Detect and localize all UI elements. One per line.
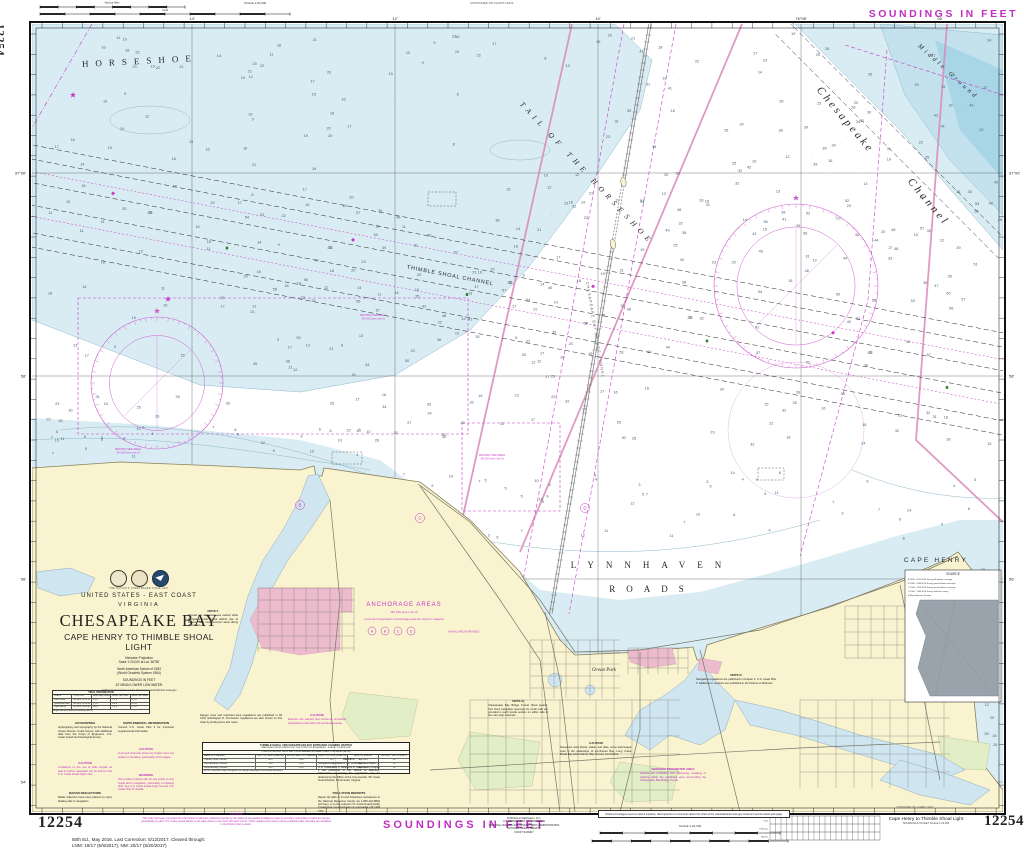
svg-text:13: 13 [455, 331, 459, 335]
svg-text:16: 16 [101, 45, 105, 49]
svg-text:54: 54 [245, 216, 249, 220]
svg-text:18: 18 [944, 415, 948, 419]
svg-text:25: 25 [673, 244, 677, 248]
svg-text:10: 10 [539, 498, 543, 502]
svg-text:21: 21 [288, 366, 292, 370]
svg-text:22: 22 [46, 418, 50, 422]
svg-text:20: 20 [460, 421, 464, 425]
svg-text:34: 34 [987, 39, 991, 43]
svg-text:51: 51 [640, 199, 644, 203]
svg-text:34: 34 [257, 240, 261, 244]
svg-text:18: 18 [652, 145, 656, 149]
svg-text:34: 34 [720, 387, 724, 391]
svg-text:35: 35 [868, 72, 872, 76]
svg-text:21: 21 [537, 228, 541, 232]
svg-text:18: 18 [394, 291, 398, 295]
svg-text:42: 42 [422, 304, 426, 308]
svg-text:23: 23 [551, 375, 555, 379]
svg-text:22: 22 [919, 141, 923, 145]
svg-text:17: 17 [355, 398, 359, 402]
svg-text:4: 4 [742, 477, 744, 481]
svg-text:SOURCE: SOURCE [946, 572, 960, 576]
svg-text:32: 32 [735, 182, 739, 186]
svg-text:16: 16 [173, 184, 177, 188]
svg-text:19: 19 [312, 167, 316, 171]
svg-text:15: 15 [55, 438, 59, 442]
svg-text:20: 20 [816, 53, 820, 57]
svg-text:31: 31 [414, 243, 418, 247]
conversion-grid: FeetFathomsMeters [759, 816, 880, 840]
svg-text:11: 11 [48, 211, 52, 215]
svg-text:19: 19 [120, 127, 124, 131]
svg-text:45: 45 [147, 210, 153, 215]
svg-text:37: 37 [756, 351, 760, 355]
svg-text:56': 56' [1009, 577, 1014, 582]
svg-text:10: 10 [696, 513, 700, 517]
svg-text:12: 12 [630, 502, 634, 506]
svg-text:334.300 (see note A): 334.300 (see note A) [361, 318, 384, 321]
svg-text:11: 11 [887, 147, 891, 151]
svg-text:20: 20 [847, 204, 851, 208]
nautical-chart-canvas: 4545454545238201119192017111018192220171… [0, 0, 1024, 849]
svg-text:RESTRICTED AREA: RESTRICTED AREA [479, 453, 505, 457]
svg-text:9: 9 [273, 449, 275, 453]
svg-text:21: 21 [898, 413, 902, 417]
svg-text:334.300 (see note A): 334.300 (see note A) [480, 458, 503, 461]
svg-text:6: 6 [733, 513, 735, 517]
svg-text:35: 35 [927, 229, 931, 233]
svg-text:11: 11 [270, 52, 274, 56]
svg-text:39: 39 [813, 163, 817, 167]
svg-text:31: 31 [933, 415, 937, 419]
svg-text:11: 11 [983, 86, 987, 90]
svg-text:11: 11 [161, 287, 165, 291]
svg-text:26: 26 [330, 401, 334, 405]
svg-text:47: 47 [934, 284, 938, 288]
svg-text:48: 48 [805, 269, 809, 273]
svg-text:LYNNHAVEN: LYNNHAVEN [571, 560, 733, 570]
svg-text:20: 20 [351, 268, 355, 272]
svg-text:39: 39 [867, 111, 871, 115]
svg-text:30: 30 [475, 335, 479, 339]
svg-text:10': 10' [595, 16, 600, 21]
svg-text:B: B [384, 629, 387, 634]
svg-text:16: 16 [243, 146, 247, 150]
svg-text:7: 7 [521, 529, 523, 533]
svg-text:32: 32 [750, 442, 754, 446]
svg-text:34: 34 [832, 144, 836, 148]
svg-text:35: 35 [378, 209, 382, 213]
svg-text:9: 9 [433, 41, 435, 45]
svg-text:27: 27 [753, 52, 757, 56]
svg-text:21: 21 [252, 163, 256, 167]
svg-text:46: 46 [891, 228, 895, 232]
svg-text:18: 18 [670, 109, 674, 113]
svg-text:20: 20 [417, 273, 421, 277]
svg-text:58': 58' [21, 374, 26, 379]
svg-text:18: 18 [125, 48, 129, 52]
svg-text:9: 9 [422, 61, 424, 65]
svg-text:24: 24 [104, 402, 108, 406]
svg-text:9: 9 [114, 345, 116, 349]
svg-text:15: 15 [66, 200, 70, 204]
svg-text:17: 17 [512, 305, 516, 309]
svg-text:50: 50 [297, 336, 301, 340]
svg-text:53: 53 [374, 233, 378, 237]
svg-text:57: 57 [376, 308, 380, 312]
svg-text:16: 16 [415, 288, 419, 292]
svg-text:54: 54 [758, 290, 762, 294]
svg-text:19: 19 [601, 272, 605, 276]
svg-text:RESTRICTED AREA: RESTRICTED AREA [360, 313, 386, 317]
svg-text:51: 51 [789, 279, 793, 283]
svg-text:4: 4 [356, 453, 358, 457]
svg-text:17: 17 [288, 345, 292, 349]
svg-text:5: 5 [237, 433, 239, 437]
svg-text:43: 43 [969, 104, 973, 108]
svg-text:6: 6 [84, 435, 86, 439]
svg-text:7: 7 [52, 452, 54, 456]
svg-text:13: 13 [776, 189, 780, 193]
svg-text:7: 7 [683, 520, 685, 524]
svg-text:35: 35 [522, 353, 526, 357]
bottom-scale-bars: SCALE 1:20,000 [592, 824, 788, 843]
svg-text:45: 45 [759, 249, 763, 253]
svg-text:12: 12 [293, 368, 297, 372]
svg-text:12: 12 [940, 238, 944, 242]
svg-text:31: 31 [620, 269, 624, 273]
svg-text:30: 30 [58, 419, 62, 423]
svg-text:18: 18 [658, 45, 662, 49]
svg-text:29: 29 [914, 83, 918, 87]
svg-text:20: 20 [664, 173, 668, 177]
svg-text:12: 12 [531, 361, 535, 365]
svg-text:18: 18 [256, 270, 260, 274]
svg-text:46: 46 [396, 215, 400, 219]
svg-text:26: 26 [993, 743, 997, 747]
svg-text:11: 11 [670, 534, 674, 538]
svg-text:16: 16 [828, 159, 832, 163]
svg-text:32: 32 [565, 400, 569, 404]
svg-text:14': 14' [189, 16, 194, 21]
svg-text:7: 7 [646, 493, 648, 497]
svg-text:18: 18 [297, 281, 301, 285]
svg-text:32: 32 [782, 408, 786, 412]
svg-text:21: 21 [313, 38, 317, 42]
svg-text:13: 13 [306, 344, 310, 348]
svg-text:19: 19 [248, 112, 252, 116]
svg-text:50: 50 [405, 359, 409, 363]
svg-text:20: 20 [122, 207, 126, 211]
svg-text:42: 42 [752, 232, 756, 236]
svg-text:4: 4 [151, 432, 153, 436]
svg-text:334.300 (see note A): 334.300 (see note A) [116, 452, 139, 455]
svg-text:22: 22 [411, 349, 415, 353]
svg-text:28: 28 [375, 438, 379, 442]
svg-text:13: 13 [468, 292, 472, 296]
svg-text:30: 30 [442, 435, 446, 439]
svg-text:16: 16 [382, 393, 386, 397]
svg-text:5: 5 [101, 436, 103, 440]
svg-text:57: 57 [502, 288, 506, 292]
svg-text:5: 5 [431, 484, 433, 488]
svg-text:23: 23 [55, 402, 59, 406]
svg-text:9: 9 [756, 478, 758, 482]
svg-text:10: 10 [139, 249, 143, 253]
svg-text:3: 3 [638, 483, 640, 487]
svg-text:D: D [410, 629, 413, 634]
svg-text:19: 19 [596, 40, 600, 44]
svg-text:B: B [298, 503, 301, 508]
svg-text:28: 28 [792, 401, 796, 405]
svg-text:21: 21 [631, 37, 635, 41]
svg-text:26: 26 [155, 415, 159, 419]
svg-text:18: 18 [862, 423, 866, 427]
svg-text:35: 35 [415, 295, 419, 299]
svg-text:28: 28 [984, 732, 988, 736]
svg-text:23: 23 [712, 260, 716, 264]
svg-text:33: 33 [888, 256, 892, 260]
svg-text:19: 19 [241, 76, 245, 80]
svg-text:26: 26 [724, 128, 728, 132]
svg-text:57: 57 [920, 227, 924, 231]
svg-text:33: 33 [675, 171, 679, 175]
svg-text:33: 33 [699, 198, 703, 202]
svg-text:12: 12 [979, 128, 983, 132]
svg-text:38: 38 [682, 280, 686, 284]
svg-text:8: 8 [515, 336, 517, 340]
svg-text:SCALE 1:20,000: SCALE 1:20,000 [244, 1, 267, 5]
svg-text:19: 19 [461, 317, 465, 321]
svg-text:15: 15 [180, 353, 184, 357]
svg-text:22: 22 [695, 59, 699, 63]
svg-text:32: 32 [926, 411, 930, 415]
svg-text:44: 44 [843, 256, 847, 260]
svg-text:11: 11 [604, 529, 608, 533]
svg-text:10: 10 [189, 140, 193, 144]
svg-text:9: 9 [124, 92, 126, 96]
svg-text:32: 32 [470, 400, 474, 404]
svg-text:Ocean Park: Ocean Park [592, 668, 617, 673]
svg-text:15: 15 [506, 188, 510, 192]
svg-text:42: 42 [860, 119, 864, 123]
svg-text:40: 40 [906, 340, 910, 344]
svg-text:12: 12 [537, 360, 541, 364]
svg-text:16: 16 [205, 148, 209, 152]
svg-text:22: 22 [533, 308, 537, 312]
svg-text:14: 14 [907, 509, 911, 513]
svg-text:16: 16 [645, 386, 649, 390]
svg-text:13: 13 [311, 299, 315, 303]
svg-text:22: 22 [261, 441, 265, 445]
svg-text:12: 12 [985, 703, 989, 707]
svg-text:15: 15 [764, 403, 768, 407]
svg-text:44: 44 [666, 346, 670, 350]
svg-text:17: 17 [492, 42, 496, 46]
svg-text:50: 50 [836, 292, 840, 296]
svg-text:17: 17 [220, 305, 224, 309]
svg-text:10: 10 [455, 50, 459, 54]
svg-text:6: 6 [899, 518, 901, 522]
svg-text:22: 22 [769, 421, 773, 425]
svg-text:31: 31 [500, 422, 504, 426]
svg-text:5: 5 [706, 480, 708, 484]
svg-text:13: 13 [73, 343, 77, 347]
svg-text:10: 10 [406, 51, 410, 55]
svg-text:16: 16 [478, 394, 482, 398]
svg-text:28: 28 [998, 218, 1002, 222]
svg-text:26: 26 [393, 431, 397, 435]
svg-text:8: 8 [457, 92, 459, 96]
svg-text:19: 19 [351, 373, 355, 377]
svg-text:17: 17 [600, 390, 604, 394]
svg-text:16: 16 [455, 35, 459, 39]
svg-text:38: 38 [682, 231, 686, 235]
svg-text:10: 10 [310, 450, 314, 454]
svg-text:5: 5 [642, 492, 644, 496]
svg-text:41: 41 [668, 86, 672, 90]
svg-text:18: 18 [330, 269, 334, 273]
svg-text:20: 20 [326, 126, 330, 130]
svg-text:13: 13 [359, 334, 363, 338]
svg-text:22: 22 [526, 339, 530, 343]
svg-text:38: 38 [779, 129, 783, 133]
svg-text:58': 58' [1009, 374, 1014, 379]
svg-text:45: 45 [867, 350, 873, 355]
svg-text:38: 38 [923, 281, 927, 285]
svg-text:11: 11 [207, 247, 211, 251]
svg-text:9: 9 [941, 522, 943, 526]
svg-text:40: 40 [314, 258, 318, 262]
svg-text:15: 15 [207, 240, 211, 244]
svg-text:39: 39 [796, 224, 800, 228]
svg-text:20: 20 [560, 356, 564, 360]
svg-text:6: 6 [496, 536, 498, 540]
svg-text:18: 18 [284, 284, 288, 288]
svg-text:15: 15 [305, 203, 309, 207]
svg-text:9: 9 [546, 495, 548, 499]
svg-text:24: 24 [739, 122, 743, 126]
svg-text:51: 51 [973, 263, 977, 267]
svg-text:32: 32 [895, 429, 899, 433]
svg-text:54': 54' [21, 780, 26, 785]
svg-text:17: 17 [310, 80, 314, 84]
svg-text:16: 16 [914, 233, 918, 237]
svg-text:48: 48 [988, 202, 992, 206]
svg-text:56: 56 [803, 231, 807, 235]
svg-text:26: 26 [825, 47, 829, 51]
svg-text:NAVAL ANCHORAGES: NAVAL ANCHORAGES [448, 630, 479, 634]
svg-text:19: 19 [108, 146, 112, 150]
svg-text:7: 7 [878, 508, 880, 512]
svg-text:5: 5 [521, 494, 523, 498]
svg-text:6: 6 [329, 429, 331, 433]
svg-text:22: 22 [949, 103, 953, 107]
svg-text:9: 9 [252, 118, 254, 122]
svg-text:15: 15 [195, 225, 199, 229]
svg-text:42: 42 [747, 165, 751, 169]
svg-text:Fathoms: Fathoms [759, 827, 768, 830]
svg-text:14: 14 [82, 285, 86, 289]
svg-text:ROADS: ROADS [609, 584, 695, 594]
svg-text:45: 45 [253, 362, 257, 366]
svg-text:21: 21 [250, 310, 254, 314]
svg-text:32: 32 [700, 316, 704, 320]
svg-text:19: 19 [478, 271, 482, 275]
svg-text:A 1990 - 2011 NOS Surve: A 1990 - 2011 NOS Survey full bottom cov… [908, 578, 953, 581]
svg-text:20: 20 [569, 342, 573, 346]
svg-text:6: 6 [903, 536, 905, 540]
svg-text:10: 10 [752, 159, 756, 163]
svg-text:19: 19 [103, 99, 107, 103]
svg-text:14: 14 [863, 182, 867, 186]
svg-text:B 1980 - 1989 NOS Surve: B 1980 - 1989 NOS Survey partial bottom … [908, 582, 956, 585]
svg-text:4: 4 [595, 477, 597, 481]
svg-text:55: 55 [356, 300, 360, 304]
svg-text:29: 29 [990, 716, 994, 720]
svg-text:14: 14 [217, 54, 221, 58]
svg-text:23: 23 [584, 216, 588, 220]
svg-text:14: 14 [554, 300, 558, 304]
svg-text:18: 18 [48, 291, 52, 295]
svg-text:49: 49 [665, 228, 669, 232]
svg-text:14: 14 [731, 471, 735, 475]
svg-text:56: 56 [949, 307, 953, 311]
svg-text:23: 23 [514, 393, 518, 397]
svg-text:54: 54 [526, 298, 530, 302]
svg-text:56: 56 [304, 278, 308, 282]
svg-text:5: 5 [710, 485, 712, 489]
svg-text:17: 17 [545, 375, 549, 379]
svg-text:17: 17 [238, 201, 242, 205]
svg-text:9: 9 [866, 480, 868, 484]
svg-text:18: 18 [514, 244, 518, 248]
svg-text:20: 20 [349, 195, 353, 199]
svg-text:26: 26 [176, 395, 180, 399]
svg-text:SCALE 1:20,000: SCALE 1:20,000 [679, 824, 702, 828]
svg-text:49: 49 [382, 246, 386, 250]
svg-text:3: 3 [841, 511, 843, 515]
svg-text:4: 4 [953, 484, 955, 488]
svg-text:22: 22 [260, 64, 264, 68]
svg-text:4: 4 [764, 492, 766, 496]
svg-text:24: 24 [861, 441, 865, 445]
svg-text:9: 9 [523, 274, 525, 278]
svg-text:11: 11 [61, 437, 65, 441]
svg-text:52: 52 [845, 199, 849, 203]
svg-text:14: 14 [449, 475, 453, 479]
svg-text:45: 45 [687, 315, 693, 320]
svg-text:40: 40 [680, 258, 684, 262]
svg-text:39: 39 [851, 105, 855, 109]
svg-text:39: 39 [804, 126, 808, 130]
svg-text:12: 12 [581, 534, 585, 538]
svg-text:45: 45 [507, 280, 513, 285]
svg-text:8: 8 [341, 344, 343, 348]
svg-text:12: 12 [375, 225, 379, 229]
svg-text:32: 32 [738, 169, 742, 173]
svg-text:39: 39 [822, 146, 826, 150]
svg-text:14: 14 [80, 162, 84, 166]
svg-text:12': 12' [392, 16, 397, 21]
svg-text:13: 13 [812, 258, 816, 262]
svg-text:9: 9 [300, 435, 302, 439]
svg-text:52: 52 [806, 211, 810, 215]
svg-text:36: 36 [956, 190, 960, 194]
svg-text:76°08': 76°08' [795, 16, 806, 21]
svg-text:25: 25 [925, 155, 929, 159]
svg-text:3: 3 [488, 533, 490, 537]
